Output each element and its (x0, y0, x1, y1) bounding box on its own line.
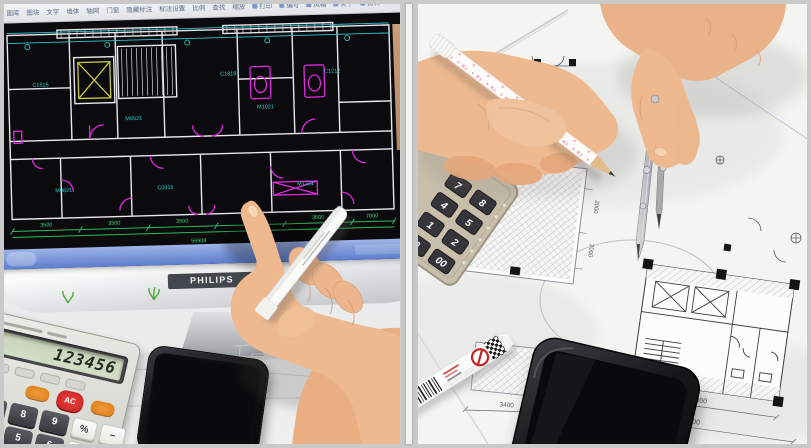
calculator-ac-key: AC (55, 389, 86, 414)
svg-text:C1515: C1515 (32, 82, 48, 88)
calculator-memory-key (65, 378, 87, 391)
calculator-key-orange (24, 384, 50, 402)
calculator-key: 6 (33, 433, 65, 444)
smartphone-left (135, 344, 271, 444)
cad-menu-item: 风格 (306, 4, 326, 9)
calculator-key: % (70, 417, 99, 442)
cad-menu-item: 图库 (6, 7, 19, 17)
calculator-memory-key (4, 360, 10, 373)
svg-text:3500: 3500 (176, 219, 188, 225)
svg-text:3500: 3500 (244, 217, 256, 223)
cad-menu-item: 资料 (360, 4, 380, 8)
right-photo-drafting: 2000 2000 3400 (418, 4, 807, 444)
svg-text:M1021: M1021 (257, 104, 274, 110)
cad-menu-item: 隐藏标注 (126, 4, 152, 14)
cad-menu-item: 图块 (26, 7, 39, 17)
panel-divider (406, 4, 412, 444)
calculator-key: 5 (4, 426, 34, 444)
cad-menu-item: 打印 (252, 4, 272, 11)
svg-text:C1212: C1212 (324, 68, 340, 74)
cad-menu-item: 比例 (192, 4, 205, 12)
two-panel-layout: 图库 图块 文字 墙体 轴网 门窗 隐藏标注 标注设置 比例 查找 缩放 打印 … (4, 4, 807, 444)
calculator-key-orange (90, 399, 116, 417)
svg-text:3500: 3500 (312, 215, 324, 221)
svg-text:56908: 56908 (191, 238, 206, 244)
calculator-memory-key (14, 366, 36, 379)
svg-text:M1221: M1221 (297, 181, 314, 187)
svg-text:M0921: M0921 (125, 116, 142, 122)
svg-text:M0821: M0821 (55, 188, 72, 194)
start-button (6, 252, 36, 267)
cad-menu-item: 查找 (212, 4, 225, 12)
cad-menu-item: 文字 (46, 6, 59, 16)
svg-text:3500: 3500 (40, 222, 52, 228)
svg-text:C0915: C0915 (157, 185, 173, 191)
left-photo-cad-monitor: 图库 图块 文字 墙体 轴网 门窗 隐藏标注 标注设置 比例 查找 缩放 打印 … (4, 4, 400, 444)
cad-menu-item: 标注设置 (159, 4, 185, 13)
calculator-memory-key (39, 372, 61, 385)
blueprint-scene: 2000 2000 3400 (418, 4, 807, 444)
philips-logo: PHILIPS (168, 272, 256, 289)
svg-text:3400: 3400 (499, 401, 514, 409)
cad-menu-item: 关于 (333, 4, 353, 8)
svg-text:C1818: C1818 (220, 71, 236, 77)
calculator-key: − (98, 423, 127, 444)
system-tray (355, 244, 400, 255)
philips-monitor: 图库 图块 文字 墙体 轴网 门窗 隐藏标注 标注设置 比例 查找 缩放 打印 … (4, 4, 400, 359)
svg-text:3500: 3500 (108, 220, 120, 226)
cad-menu-item: 墙体 (66, 6, 79, 16)
cad-menu-item: 缩放 (232, 4, 245, 11)
cad-menu-item: 编号 (279, 4, 299, 10)
compass-head (651, 95, 659, 103)
photo-collage: 图库 图块 文字 墙体 轴网 门窗 隐藏标注 标注设置 比例 查找 缩放 打印 … (0, 0, 811, 448)
cad-screen: C1515 M0921 C1818 M1021 C1212 M0821 C091… (4, 12, 400, 270)
calculator-key: 9 (38, 409, 70, 435)
cad-menu-item: 轴网 (86, 5, 99, 15)
smartphone-screen (143, 352, 263, 444)
cad-menu-item: 门窗 (106, 4, 119, 14)
svg-text:7000: 7000 (366, 213, 378, 219)
cad-floor-plan: C1515 M0921 C1818 M1021 C1212 M0821 C091… (4, 12, 400, 270)
calculator-key: 8 (7, 402, 39, 428)
